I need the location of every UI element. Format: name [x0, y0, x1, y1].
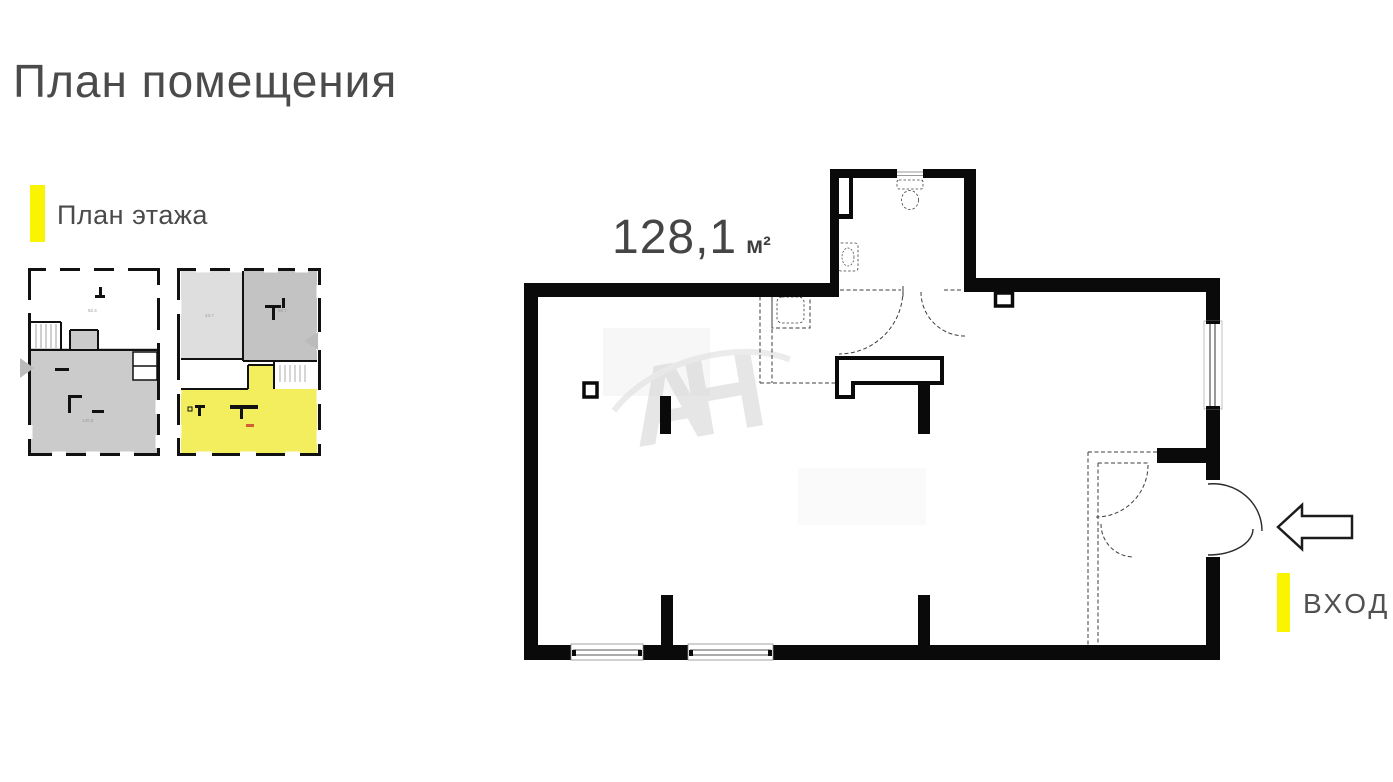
entrance-arrow-icon	[1278, 505, 1352, 549]
thumb1-room-label-top: 92.4	[88, 308, 97, 313]
watermark-text: АН	[619, 325, 768, 470]
column-square	[584, 383, 597, 397]
thumb2-room-label-right: 80.7	[278, 308, 287, 313]
entrance-door-swing	[1208, 484, 1262, 555]
bump-vent-window	[897, 169, 923, 178]
bottom-window-1	[571, 644, 643, 660]
thumb1-room-label-bottom: 140.8	[82, 418, 94, 423]
main-floor-plan: АН	[524, 169, 1262, 660]
floor-plan-page: План помещения План этажа 128,1 м² ВХОД	[0, 0, 1393, 782]
right-window	[1204, 321, 1222, 409]
floor-thumbnail-first: 92.4 140.8	[20, 267, 162, 458]
page-graphics: 92.4 140.8	[0, 0, 1393, 782]
floor-thumbnail-second: 43.7 80.7	[176, 267, 324, 458]
walls	[524, 169, 1220, 660]
pilaster-square	[996, 293, 1013, 306]
bottom-window-2	[688, 644, 773, 660]
thumb2-room-label-left: 43.7	[205, 313, 214, 318]
thumb2-highlight-area-mark	[246, 424, 254, 427]
dashed-partitions	[760, 180, 1157, 645]
